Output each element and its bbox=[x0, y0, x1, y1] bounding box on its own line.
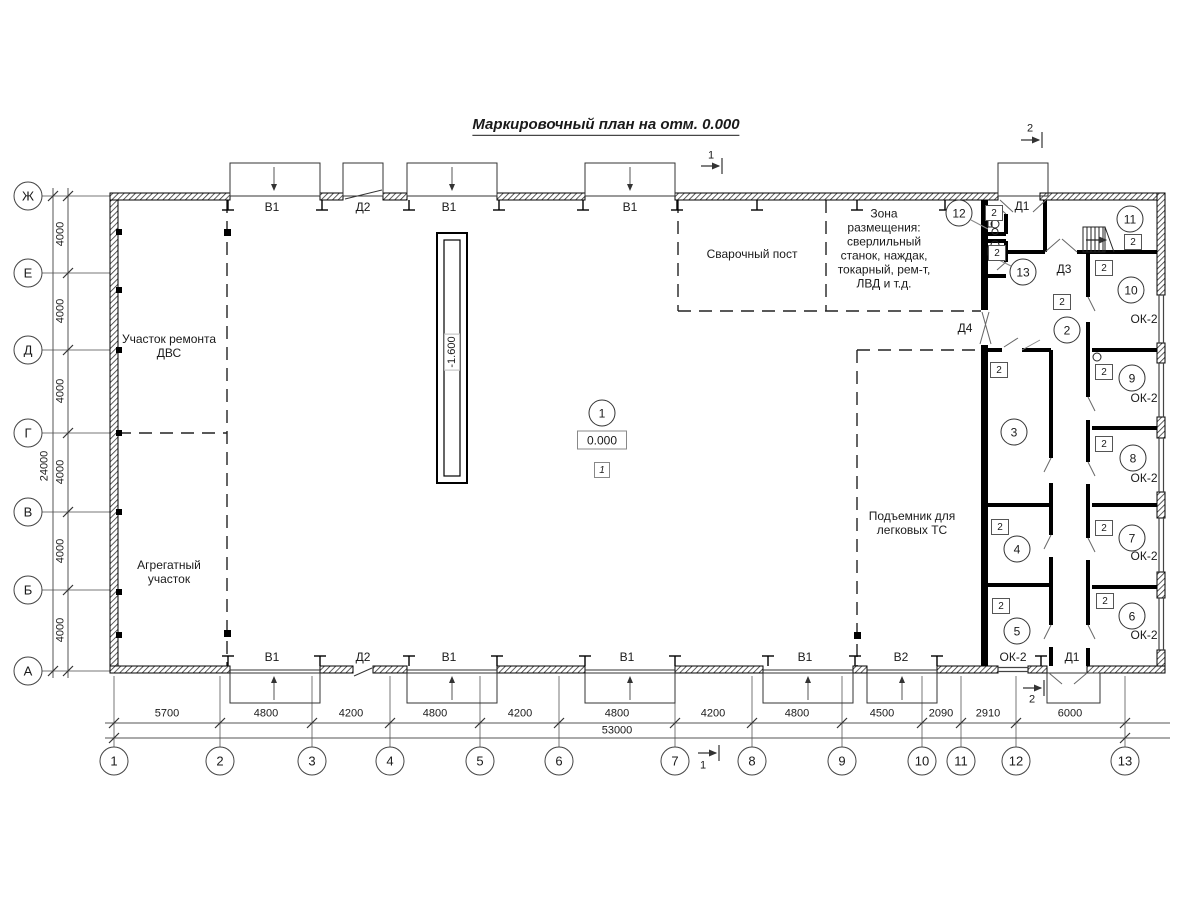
room-number: 6 bbox=[1129, 609, 1136, 623]
floor-type-tag: 2 bbox=[1053, 294, 1071, 310]
axis-col-3: 3 bbox=[298, 747, 327, 776]
dim-bottom: 2910 bbox=[976, 708, 1000, 721]
door-label-d1: Д1 bbox=[1065, 651, 1080, 665]
axis-row-a: А bbox=[14, 657, 43, 686]
axis-label: А bbox=[24, 664, 33, 679]
gate-openings bbox=[230, 163, 1100, 703]
gate-label-b1: В1 bbox=[265, 201, 280, 215]
dim-bottom: 5700 bbox=[155, 708, 179, 721]
room-tag-2: 2 bbox=[1054, 317, 1081, 344]
axis-col-12: 12 bbox=[1002, 747, 1031, 776]
dim-bottom: 4800 bbox=[605, 708, 629, 721]
room-tag-10: 10 bbox=[1118, 277, 1145, 304]
dim-left-bay: 4000 bbox=[55, 299, 68, 323]
window-label: ОК-2 bbox=[1131, 472, 1158, 486]
dim-bottom: 4200 bbox=[701, 708, 725, 721]
axis-label: 3 bbox=[308, 754, 315, 769]
dim-bottom: 4500 bbox=[870, 708, 894, 721]
dim-bottom-total: 53000 bbox=[602, 725, 633, 738]
stairs bbox=[1083, 227, 1114, 252]
door-label-d1: Д1 bbox=[1015, 200, 1030, 214]
dim-bottom: 4200 bbox=[339, 708, 363, 721]
window-label: ОК-2 bbox=[1131, 550, 1158, 564]
axis-col-9: 9 bbox=[828, 747, 857, 776]
floor-plan: Маркировочный план на отм. 0.000 Ж Е Д Г… bbox=[0, 0, 1200, 900]
axis-row-e: Е bbox=[14, 259, 43, 288]
floor-type: 2 bbox=[1101, 367, 1107, 378]
gate-label-b1: В1 bbox=[623, 201, 638, 215]
room-tag-12: 12 bbox=[946, 200, 973, 227]
axis-label: Г bbox=[24, 426, 31, 441]
dimension-ticks bbox=[48, 191, 1130, 743]
axis-col-6: 6 bbox=[545, 747, 574, 776]
room-tag-1: 1 bbox=[589, 400, 616, 427]
window-label: ОК-2 bbox=[1000, 651, 1027, 665]
dim-bottom: 4800 bbox=[785, 708, 809, 721]
floor-type-tag: 2 bbox=[991, 519, 1009, 535]
floor-type-tag: 2 bbox=[985, 205, 1003, 221]
floor-type-tag: 2 bbox=[1095, 364, 1113, 380]
zone-equipment: Зона размещения: сверлильный станок, наж… bbox=[838, 207, 931, 290]
room-tag-6: 6 bbox=[1119, 603, 1146, 630]
zone-aggregate: Агрегатный участок bbox=[137, 559, 201, 587]
axis-label: 12 bbox=[1009, 754, 1023, 769]
floor-type-tag: 2 bbox=[1095, 260, 1113, 276]
room-number: 2 bbox=[1064, 323, 1071, 337]
floor-type: 2 bbox=[1101, 439, 1107, 450]
axis-label: 9 bbox=[838, 754, 845, 769]
zone-welding: Сварочный пост bbox=[707, 248, 798, 262]
section-label-2: 2 bbox=[1027, 123, 1033, 136]
axis-label: Б bbox=[24, 583, 33, 598]
axis-label: 4 bbox=[386, 754, 393, 769]
axis-label: 13 bbox=[1118, 754, 1132, 769]
axis-label: 5 bbox=[476, 754, 483, 769]
detail-ref: 1 bbox=[599, 465, 605, 476]
gate-label-b1: В1 bbox=[620, 651, 635, 665]
axis-label: 2 bbox=[216, 754, 223, 769]
room-tag-5: 5 bbox=[1004, 618, 1031, 645]
axis-row-v: В bbox=[14, 498, 43, 527]
elevation-value: 0.000 bbox=[587, 433, 617, 447]
axis-row-d: Д bbox=[14, 336, 43, 365]
axis-label: 11 bbox=[954, 754, 968, 769]
floor-type: 2 bbox=[991, 208, 997, 219]
dim-bottom: 6000 bbox=[1058, 708, 1082, 721]
floor-type: 2 bbox=[1101, 263, 1107, 274]
floor-type: 2 bbox=[998, 601, 1004, 612]
room-number: 8 bbox=[1130, 451, 1137, 465]
dim-left-bay: 4000 bbox=[55, 379, 68, 403]
room-number: 1 bbox=[599, 406, 606, 420]
dim-bottom: 2090 bbox=[929, 708, 953, 721]
axis-col-11: 11 bbox=[947, 747, 976, 776]
axis-label: 10 bbox=[915, 754, 929, 769]
axis-col-10: 10 bbox=[908, 747, 937, 776]
floor-type: 2 bbox=[1101, 523, 1107, 534]
room-tag-9: 9 bbox=[1119, 365, 1146, 392]
room-number: 5 bbox=[1014, 624, 1021, 638]
axis-label: 7 bbox=[671, 754, 678, 769]
floor-type: 2 bbox=[997, 522, 1003, 533]
section-label-2: 2 bbox=[1029, 694, 1035, 707]
floor-type-tag: 2 bbox=[1124, 234, 1142, 250]
floor-type-tag: 2 bbox=[992, 598, 1010, 614]
pit-elevation-mark: -1.600 bbox=[444, 333, 460, 370]
axis-label: 6 bbox=[555, 754, 562, 769]
gate-label-b1: В1 bbox=[265, 651, 280, 665]
axis-label: 8 bbox=[748, 754, 755, 769]
zone-engine-repair: Участок ремонта ДВС bbox=[122, 333, 216, 361]
room-number: 9 bbox=[1129, 371, 1136, 385]
floor-type: 2 bbox=[994, 248, 1000, 259]
axis-extension-lines bbox=[42, 196, 1125, 747]
axis-col-2: 2 bbox=[206, 747, 235, 776]
floor-type: 2 bbox=[996, 365, 1002, 376]
window-label: ОК-2 bbox=[1131, 392, 1158, 406]
floor-type: 2 bbox=[1130, 237, 1136, 248]
dim-bottom: 4800 bbox=[254, 708, 278, 721]
gate-label-b1: В1 bbox=[798, 651, 813, 665]
gate-label-b2: В2 bbox=[894, 651, 909, 665]
axis-col-1: 1 bbox=[100, 747, 129, 776]
detail-ref-box: 1 bbox=[594, 462, 610, 478]
dim-left-bay: 4000 bbox=[55, 460, 68, 484]
floor-type-tag: 2 bbox=[1095, 520, 1113, 536]
axis-row-zh: Ж bbox=[14, 182, 43, 211]
dim-left-bay: 4000 bbox=[55, 222, 68, 246]
elevation-mark: 0.000 bbox=[577, 431, 627, 450]
axis-label: Д bbox=[24, 343, 33, 358]
axis-col-4: 4 bbox=[376, 747, 405, 776]
dim-left-total: 24000 bbox=[39, 451, 52, 482]
door-label-d3: Д3 bbox=[1057, 263, 1072, 277]
axis-label: Ж bbox=[22, 189, 34, 204]
room-number: 13 bbox=[1016, 265, 1029, 279]
window-label: ОК-2 bbox=[1131, 313, 1158, 327]
room-tag-3: 3 bbox=[1001, 419, 1028, 446]
axis-row-b: Б bbox=[14, 576, 43, 605]
door-label-d2: Д2 bbox=[356, 201, 371, 215]
axis-col-8: 8 bbox=[738, 747, 767, 776]
floor-type: 2 bbox=[1102, 596, 1108, 607]
dim-left-bay: 4000 bbox=[55, 618, 68, 642]
room-tag-7: 7 bbox=[1119, 525, 1146, 552]
door-label-d2: Д2 bbox=[356, 651, 371, 665]
room-tag-11: 11 bbox=[1117, 206, 1144, 233]
floor-type-tag: 2 bbox=[988, 245, 1006, 261]
axis-row-g: Г bbox=[14, 419, 43, 448]
door-label-d4: Д4 bbox=[958, 322, 973, 336]
zone-lift: Подъемник для легковых ТС bbox=[869, 510, 956, 538]
floor-type-tag: 2 bbox=[1095, 436, 1113, 452]
dim-left-bay: 4000 bbox=[55, 539, 68, 563]
room-tag-8: 8 bbox=[1120, 445, 1147, 472]
gate-label-b1: В1 bbox=[442, 651, 457, 665]
dim-bottom: 4200 bbox=[508, 708, 532, 721]
axis-label: 1 bbox=[110, 754, 117, 769]
dim-bottom: 4800 bbox=[423, 708, 447, 721]
plan-title: Маркировочный план на отм. 0.000 bbox=[472, 116, 739, 136]
section-label-1: 1 bbox=[708, 150, 714, 163]
gate-label-b1: В1 bbox=[442, 201, 457, 215]
axis-col-13: 13 bbox=[1111, 747, 1140, 776]
window-label: ОК-2 bbox=[1131, 629, 1158, 643]
floor-type-tag: 2 bbox=[990, 362, 1008, 378]
axis-col-5: 5 bbox=[466, 747, 495, 776]
room-tag-4: 4 bbox=[1004, 536, 1031, 563]
axis-col-7: 7 bbox=[661, 747, 690, 776]
room-tag-13: 13 bbox=[1010, 259, 1037, 286]
axis-label: Е bbox=[24, 266, 33, 281]
room-number: 10 bbox=[1124, 283, 1137, 297]
room-number: 12 bbox=[952, 206, 965, 220]
section-label-1: 1 bbox=[700, 760, 706, 773]
floor-type: 2 bbox=[1059, 297, 1065, 308]
room-number: 7 bbox=[1129, 531, 1136, 545]
room-number: 11 bbox=[1124, 212, 1136, 226]
axis-label: В bbox=[24, 505, 33, 520]
room-number: 3 bbox=[1011, 425, 1018, 439]
room-number: 4 bbox=[1014, 542, 1021, 556]
floor-type-tag: 2 bbox=[1096, 593, 1114, 609]
